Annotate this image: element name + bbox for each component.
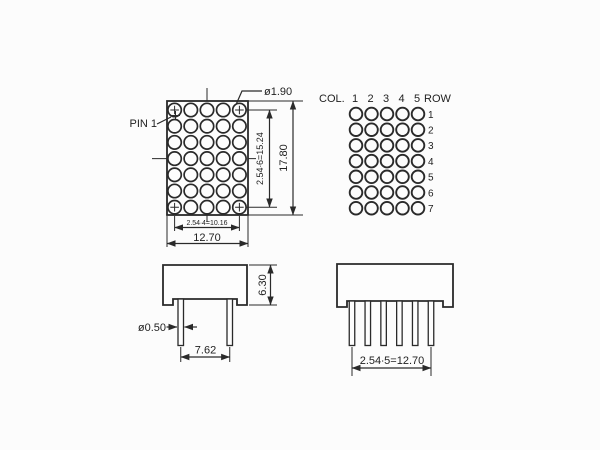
front-view: PIN 1 ø1.90 2.54∙4=10.16 12.70 2.54∙6=15… [129,86,303,247]
pin-diameter-label: ø0.50 [138,322,166,334]
pinmap-dot [350,171,363,184]
pinmap-dot [396,186,409,199]
pinmap-dot [381,108,394,121]
lead-pin [365,301,371,346]
lead-pin [412,301,418,346]
dot-diameter-label: ø1.90 [264,86,292,98]
pinmap-dot [365,139,378,152]
pinmap-dot [350,186,363,199]
pinmap-dot [412,155,425,168]
row-number: 7 [428,204,434,215]
lead-pin [381,301,387,346]
side-view: 6.30 ø0.50 7.62 [138,265,277,362]
row-number: 5 [428,173,434,184]
pinmap-dot [396,202,409,215]
row-number: 3 [428,141,434,152]
lead-pin [227,299,233,346]
dim-height-outer-label: 17.80 [278,144,290,172]
pinmap-dot [381,155,394,168]
pinmap-dot [396,123,409,136]
pinmap-dot [396,155,409,168]
col-number: 4 [398,93,404,105]
side-view-body [163,265,247,305]
pinmap-dot [350,123,363,136]
row-number: 1 [428,110,434,121]
pinmap-dot [365,155,378,168]
pinmap-dot [412,123,425,136]
lead-pin [178,299,184,346]
lead-pin [397,301,403,346]
col-number: 3 [383,93,389,105]
bottom-view: 2.54∙5=12.70 [337,264,453,376]
pinmap-dot [396,108,409,121]
pinmap-dot [350,108,363,121]
pinmap-dot [350,139,363,152]
technical-drawing-canvas: PIN 1 ø1.90 2.54∙4=10.16 12.70 2.54∙6=15… [0,0,600,450]
pinmap-dot [396,139,409,152]
dim-width-outer-label: 12.70 [193,232,221,244]
drawing-page: PIN 1 ø1.90 2.54∙4=10.16 12.70 2.54∙6=15… [0,0,600,450]
col-number: 1 [352,93,358,105]
bottom-pin-row [349,301,434,346]
pinmap-dot [381,202,394,215]
pin-numbering-diagram: COL. ROW 123451234567 [319,93,452,215]
col-number: 2 [367,93,373,105]
dim-height-inner-label: 2.54∙6=15.24 [255,132,265,185]
pinmap-dot-grid: 123451234567 [350,93,434,215]
pinmap-dot [381,139,394,152]
row-label: ROW [424,93,452,105]
pinmap-dot [412,108,425,121]
pinmap-dot [365,202,378,215]
col-number: 5 [414,93,420,105]
pinmap-dot [412,186,425,199]
col-label: COL. [319,93,345,105]
dim-body-height-label: 6.30 [257,274,269,295]
pinmap-dot [365,171,378,184]
pinmap-dot [412,139,425,152]
lead-pin [349,301,355,346]
pinmap-dot [412,171,425,184]
row-number: 6 [428,188,434,199]
pinmap-dot [412,202,425,215]
pinmap-dot [350,202,363,215]
pinmap-dot [381,186,394,199]
pin1-label: PIN 1 [129,118,157,130]
pinmap-dot [365,108,378,121]
pinmap-dot [381,123,394,136]
lead-pin [428,301,434,346]
pinmap-dot [365,186,378,199]
pinmap-dot [396,171,409,184]
dim-pin-row-label: 2.54∙5=12.70 [360,355,425,367]
dim-pin-pitch-label: 7.62 [195,345,216,357]
dim-width-inner-label: 2.54∙4=10.16 [186,220,227,227]
row-number: 4 [428,157,434,168]
pinmap-dot [365,123,378,136]
pinmap-dot [350,155,363,168]
pinmap-dot [381,171,394,184]
row-number: 2 [428,126,434,137]
